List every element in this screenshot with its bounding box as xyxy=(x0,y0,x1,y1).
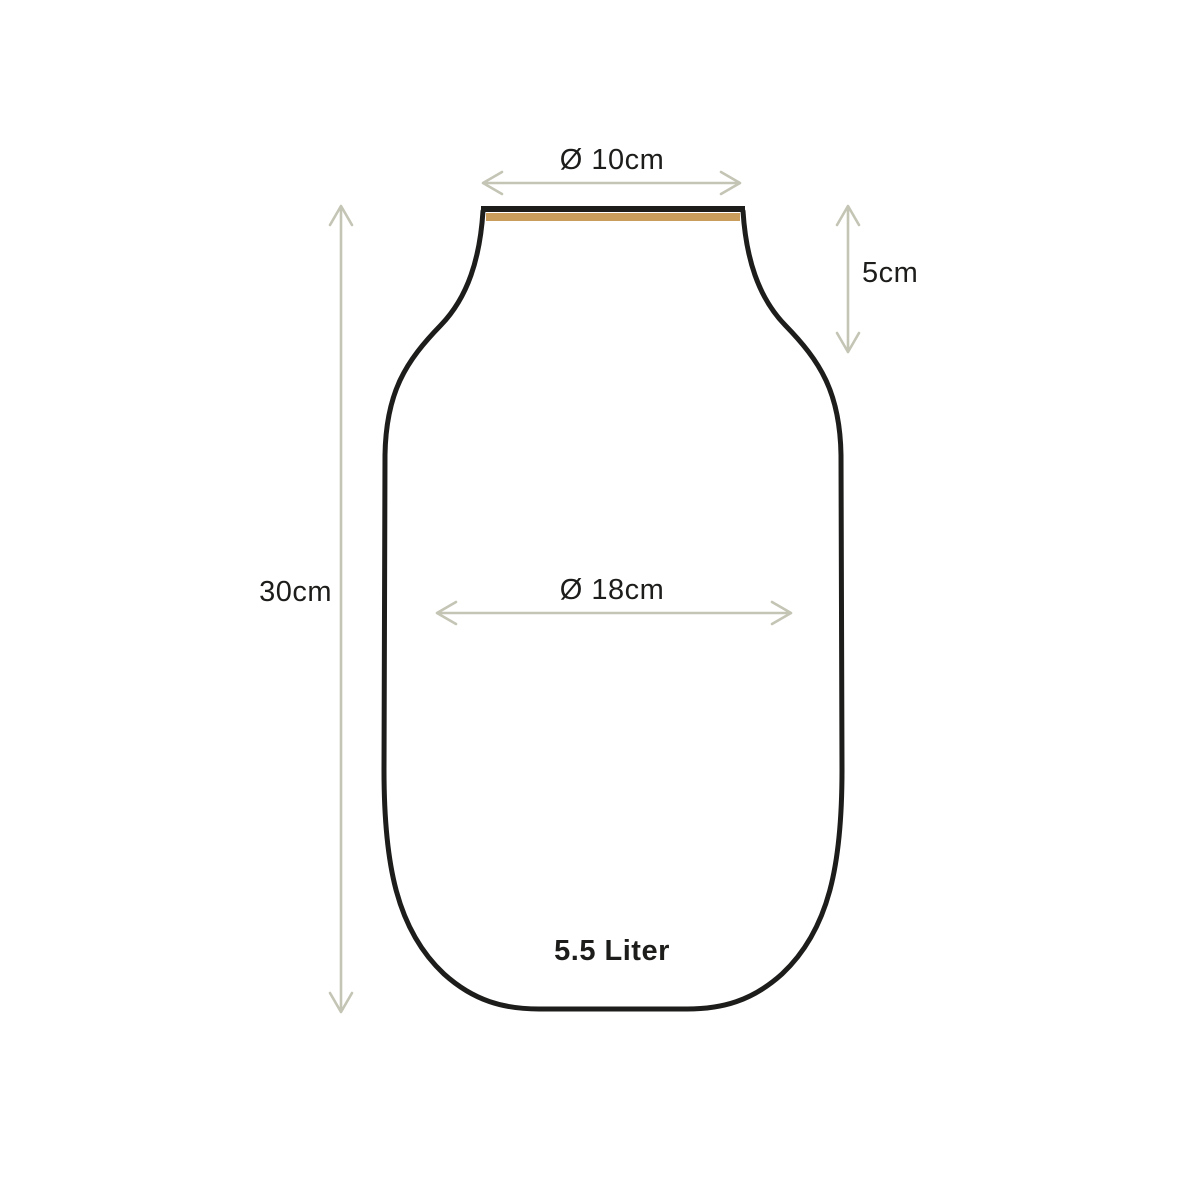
total-height-label: 30cm xyxy=(180,575,332,609)
volume-label: 5.5 Liter xyxy=(462,934,762,968)
total-height-arrow-icon xyxy=(330,206,352,1012)
neck-height-arrow-icon xyxy=(837,206,859,352)
neck-height-label: 5cm xyxy=(862,256,918,290)
vase-outline xyxy=(384,211,842,1009)
vase-dimension-diagram: Ø 10cm 5cm 30cm Ø 18cm 5.5 Liter xyxy=(0,0,1200,1200)
top-diameter-label: Ø 10cm xyxy=(462,143,762,177)
body-diameter-label: Ø 18cm xyxy=(462,573,762,607)
